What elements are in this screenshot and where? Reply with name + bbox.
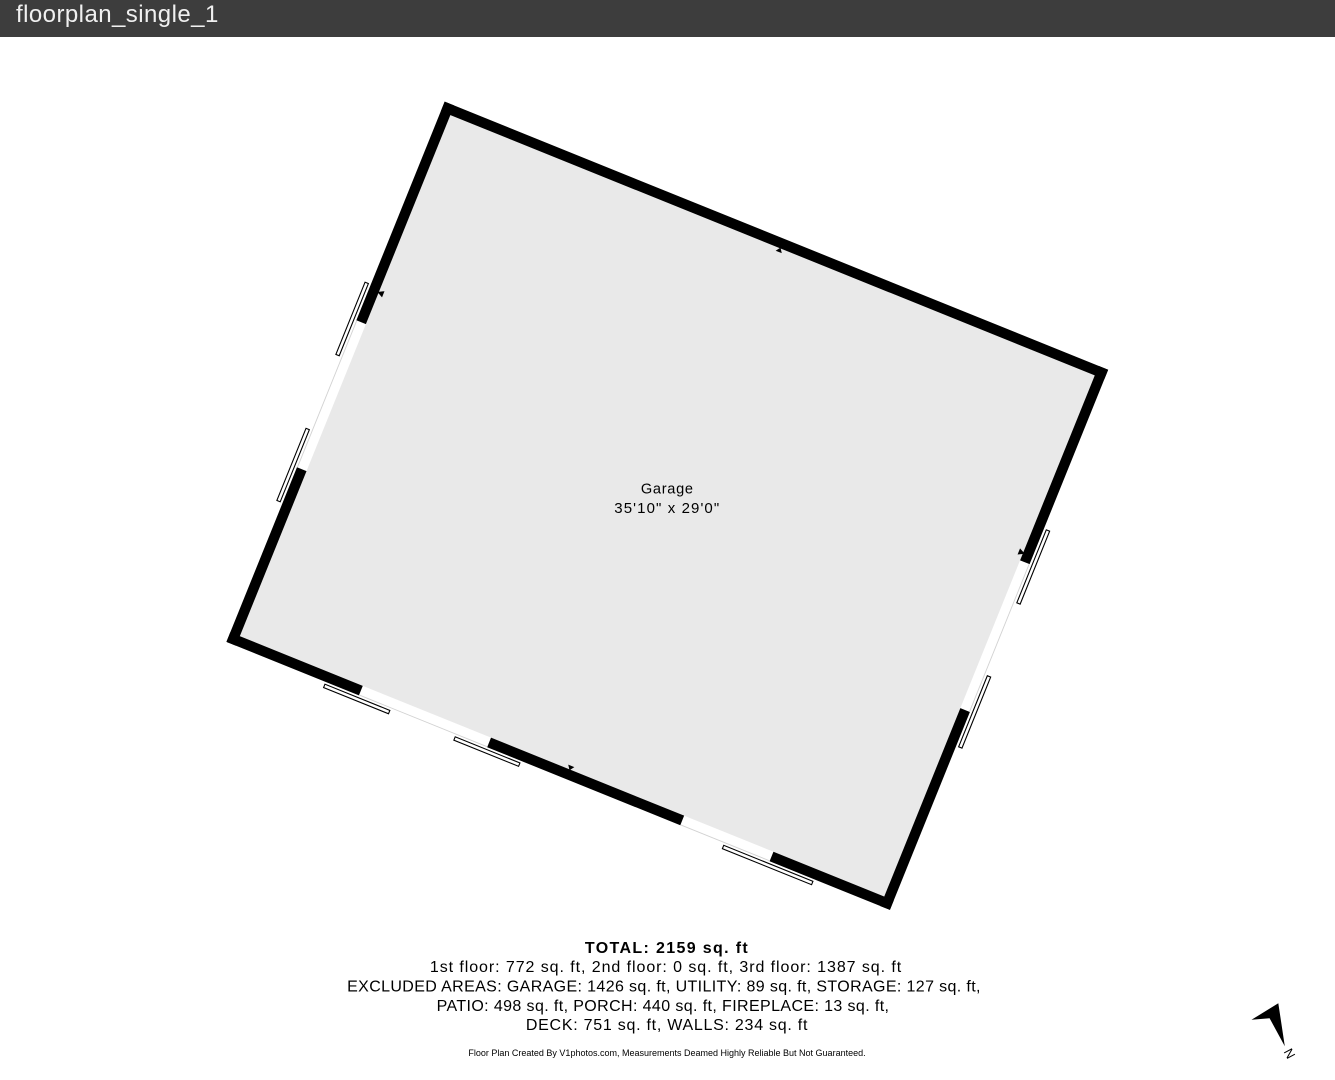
svg-text:EXCLUDED AREAS: GARAGE: 1426 s: EXCLUDED AREAS: GARAGE: 1426 sq. ft, UTI… [347,979,981,996]
svg-text:Floor Plan Created By V1photos: Floor Plan Created By V1photos.com, Meas… [468,1048,865,1058]
svg-text:1st floor: 772 sq. ft, 2nd flo: 1st floor: 772 sq. ft, 2nd floor: 0 sq. … [430,959,902,976]
svg-text:PATIO: 498 sq. ft, PORCH: 440: PATIO: 498 sq. ft, PORCH: 440 sq. ft, FI… [437,998,890,1015]
svg-text:35'10" x 29'0": 35'10" x 29'0" [614,500,720,517]
svg-text:N: N [1281,1046,1299,1061]
svg-text:Garage: Garage [641,481,694,497]
svg-text:TOTAL: 2159 sq. ft: TOTAL: 2159 sq. ft [585,940,749,957]
svg-text:DECK: 751 sq. ft, WALLS: 234 s: DECK: 751 sq. ft, WALLS: 234 sq. ft [526,1017,808,1034]
